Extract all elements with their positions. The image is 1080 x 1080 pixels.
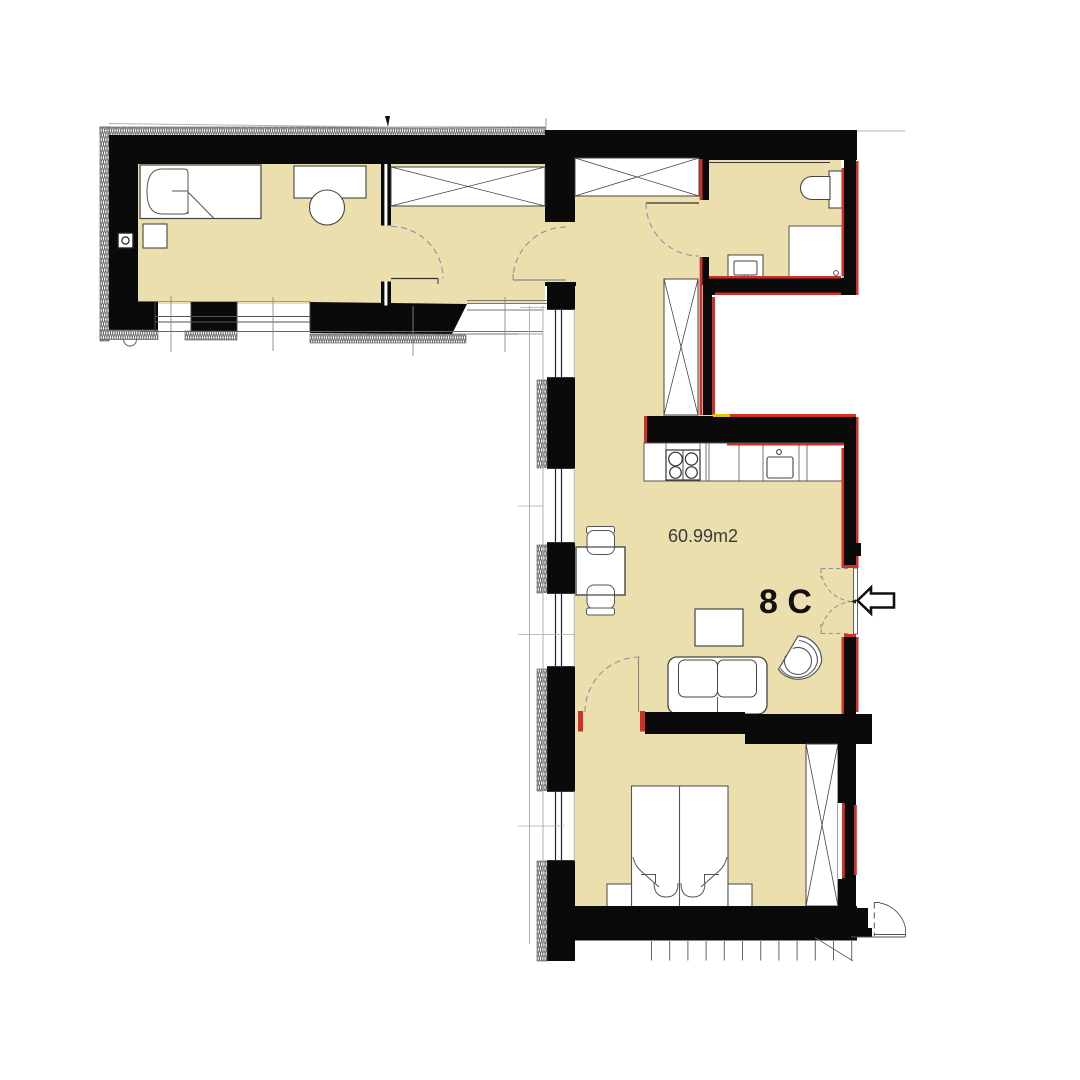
svg-text:60.99m2: 60.99m2	[668, 526, 738, 546]
svg-text:8 C: 8 C	[759, 583, 812, 621]
